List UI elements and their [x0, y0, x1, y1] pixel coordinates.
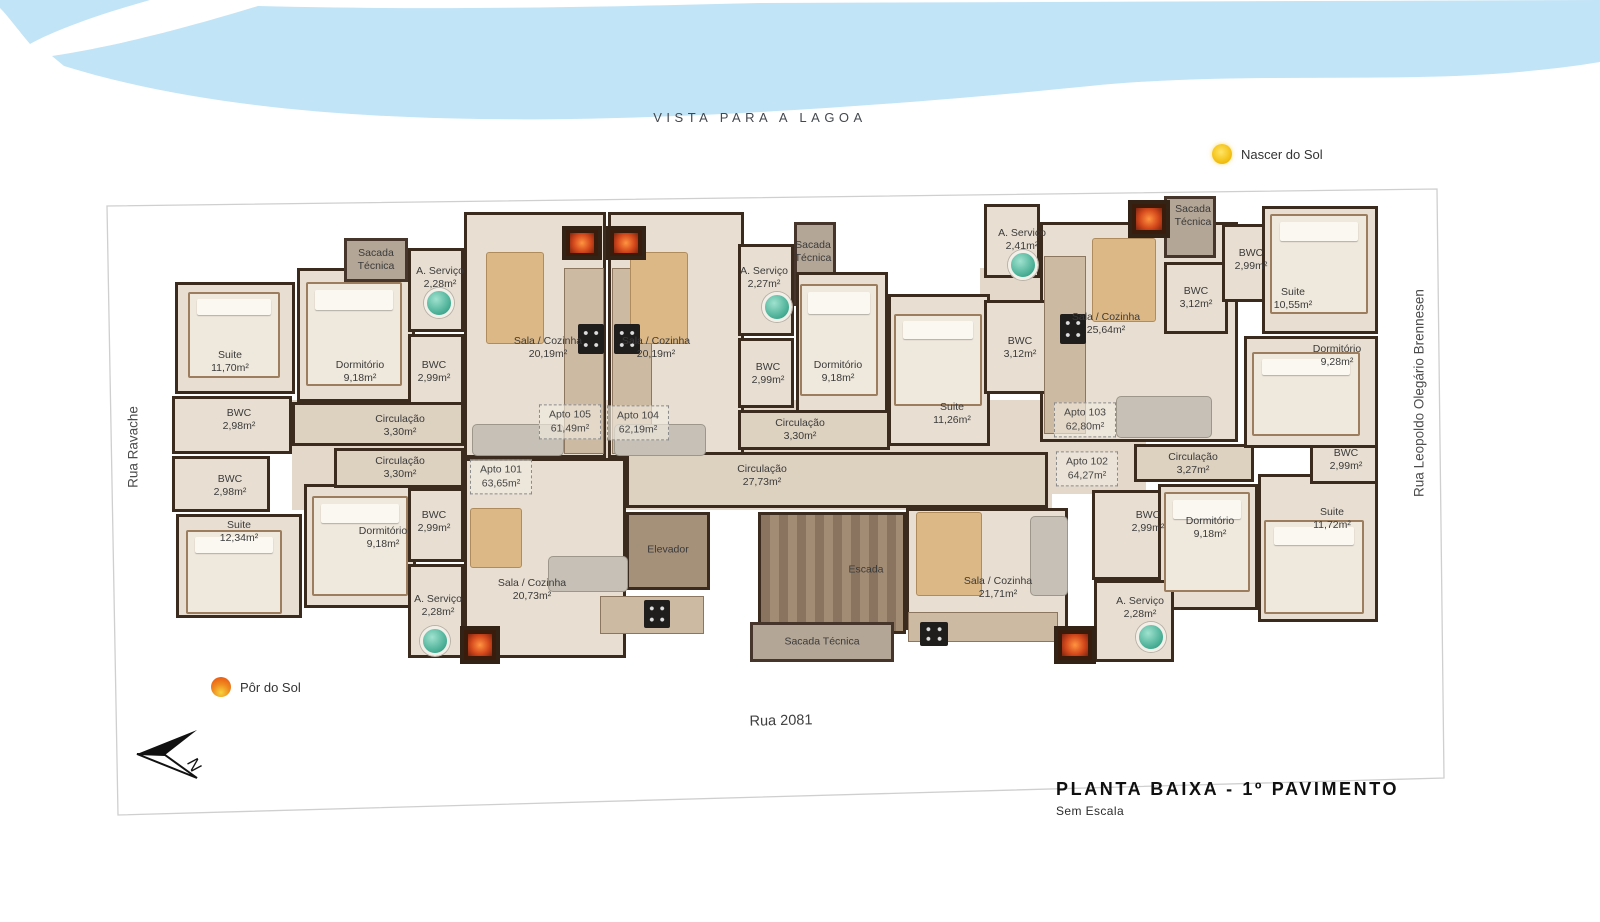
room-label: A. Serviço2,28m² — [414, 593, 462, 619]
washer-icon — [762, 292, 792, 322]
washer-icon — [424, 288, 454, 318]
stove-icon — [920, 622, 948, 646]
room-label: Sala / Cozinha25,64m² — [1072, 311, 1140, 337]
room-label: A. Serviço2,41m² — [998, 227, 1046, 253]
room-label: Suite11,70m² — [211, 349, 249, 375]
room-label: Sacada Técnica — [784, 635, 859, 648]
room-label: SacadaTécnica — [1175, 203, 1212, 229]
sofa-icon — [1116, 396, 1212, 438]
sofa-icon — [1030, 516, 1068, 596]
unit-tag: Apto 10462,19m² — [607, 405, 669, 440]
stove-icon — [644, 600, 670, 628]
room-label: Circulação3,30m² — [375, 455, 425, 481]
room-label: SacadaTécnica — [358, 247, 395, 273]
fire-icon — [606, 226, 646, 260]
fire-icon — [1128, 200, 1170, 238]
north-arrow-icon: N — [133, 726, 211, 784]
washer-icon — [1008, 250, 1038, 280]
room-label: Circulação3,30m² — [375, 413, 425, 439]
unit-tag: Apto 10264,27m² — [1056, 451, 1118, 486]
washer-icon — [1136, 622, 1166, 652]
room-label: Dormitório9,18m² — [1186, 515, 1234, 541]
room-label: BWC2,99m² — [418, 509, 451, 535]
bed-icon — [1264, 520, 1364, 614]
room-label: Dormitório9,18m² — [336, 359, 384, 385]
room-label: Sala / Cozinha20,19m² — [514, 335, 582, 361]
unit-tag: Apto 10561,49m² — [539, 404, 601, 439]
room-label: A. Serviço2,27m² — [740, 265, 788, 291]
room-label: SacadaTécnica — [795, 239, 832, 265]
table-icon — [486, 252, 544, 344]
fire-icon — [1054, 626, 1096, 664]
bed-icon — [1164, 492, 1250, 592]
unit-tag: Apto 10362,80m² — [1054, 402, 1116, 437]
street-label-rua-2081: Rua 2081 — [749, 712, 812, 729]
table-icon — [470, 508, 522, 568]
title-block: PLANTA BAIXA - 1º PAVIMENTO Sem Escala — [1056, 779, 1399, 818]
room-label: Sala / Cozinha20,73m² — [498, 577, 566, 603]
bed-icon — [894, 314, 982, 406]
room-label: Elevador — [647, 543, 688, 556]
room-label: Sala / Cozinha21,71m² — [964, 575, 1032, 601]
room-escada — [758, 512, 906, 634]
room-label: Suite11,72m² — [1313, 506, 1351, 532]
room-label: Dormitório9,18m² — [359, 525, 407, 551]
floor-plan-sheet: VISTA PARA A LAGOA Nascer do Sol Pôr do … — [0, 0, 1600, 922]
room-label: BWC2,98m² — [214, 473, 247, 499]
room-label: BWC2,98m² — [223, 407, 256, 433]
room-label: BWC2,99m² — [1132, 509, 1165, 535]
room-label: Circulação3,30m² — [775, 417, 825, 443]
room-circulacao-2773 — [626, 452, 1048, 508]
street-label-rua-leopoldo: Rua Leopoldo Olegário Brennesen — [1412, 289, 1427, 497]
room-label: BWC3,12m² — [1004, 335, 1037, 361]
drawing-scale-note: Sem Escala — [1056, 804, 1399, 818]
fire-icon — [562, 226, 602, 260]
fire-icon — [460, 626, 500, 664]
room-label: BWC2,99m² — [1330, 447, 1363, 473]
room-label: Escada — [848, 563, 883, 576]
room-label: Dormitório9,28m² — [1313, 343, 1361, 369]
room-label: Circulação3,27m² — [1168, 451, 1218, 477]
room-label: Dormitório9,18m² — [814, 359, 862, 385]
room-label: A. Serviço2,28m² — [1116, 595, 1164, 621]
unit-tag: Apto 10163,65m² — [470, 459, 532, 494]
street-label-rua-ravache: Rua Ravache — [126, 406, 141, 488]
table-icon — [1092, 238, 1156, 322]
room-label: Sala / Cozinha20,19m² — [622, 335, 690, 361]
room-label: Circulação27,73m² — [737, 463, 787, 489]
room-label: Suite12,34m² — [220, 519, 259, 545]
room-label: BWC2,99m² — [418, 359, 451, 385]
room-label: Suite11,26m² — [933, 401, 971, 427]
room-label: BWC2,99m² — [1235, 247, 1268, 273]
washer-icon — [420, 626, 450, 656]
room-label: BWC2,99m² — [752, 361, 785, 387]
drawing-title: PLANTA BAIXA - 1º PAVIMENTO — [1056, 779, 1399, 800]
room-label: Suite10,55m² — [1274, 286, 1313, 312]
room-label: A. Serviço2,28m² — [416, 265, 464, 291]
room-label: BWC3,12m² — [1180, 285, 1213, 311]
